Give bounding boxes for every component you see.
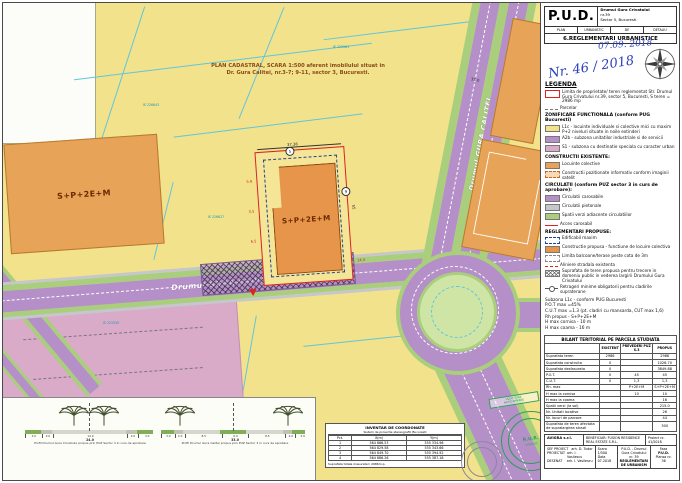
pud-logo-text: P.U.D. — [545, 7, 597, 26]
profile-caption: Profil Drumul Gura Calitei propus prin P… — [161, 442, 309, 446]
legend-item: L1c - locuinte individuale si colective … — [545, 125, 676, 134]
dim-left2: 3.5 — [248, 209, 254, 213]
legend-section: ZONIFICARE FUNCTIONALA (conform PUG Bucu… — [545, 113, 676, 123]
tree-icon — [271, 403, 305, 429]
role-row: PROIECTATarh. I. Vasilescu — [547, 451, 593, 459]
dim-right: 14.5 — [357, 258, 365, 263]
round-stamp — [461, 441, 503, 480]
coords-total: Suprafata totala masurata= 2986m.p. — [328, 462, 462, 466]
regulated-parcel: S+P+2E+M 37.36 5.9 3.5 6.5 14.5 55 5 9 — [254, 146, 353, 286]
coords-row: 4564 886.26555 387.16 — [329, 456, 462, 461]
legend-item: Edificabil maxim — [545, 236, 676, 243]
legend-title: LEGENDA — [545, 81, 676, 88]
legend-item: Parcelar — [545, 106, 676, 111]
legend-item: A2b - subzona unitatilor industriale si … — [545, 136, 676, 143]
drawing-title-2: REGLEMENTARI DE URBANISM — [620, 459, 648, 467]
drawing-title-1: P.U.D. - Drumul Gura Crivatului nr. 39 — [620, 447, 648, 459]
tree-icon — [57, 403, 91, 429]
legend-item: Spatii verzi adiacente circulatiilor — [545, 213, 676, 220]
map-area: Drumul GURA CRIVATULUI Drumul GURA CALIT… — [3, 3, 541, 480]
legend-item: Circulatii pietonale — [545, 204, 676, 211]
ie-label: IE 226627 — [208, 215, 224, 219]
project-number: 41/2018 — [648, 440, 662, 444]
legend-item: Locuinte colective — [545, 162, 676, 169]
coordinates-table: INVENTAR DE COORDONATE Sistem de proiect… — [325, 423, 465, 468]
profile-caption: Profil Drumul Gura Crivatului propus pri… — [25, 442, 155, 446]
legend-item: S1 - subzona cu destinatie speciala cu c… — [545, 145, 676, 152]
firm-name: AVIGRA s.r.l. — [547, 436, 572, 440]
access-arrow-icon — [249, 289, 257, 297]
dim-side: 55 — [351, 204, 357, 210]
title-block-footer: AVIGRA s.r.l. BENEFICIAR: FUSION RESIDEN… — [544, 434, 677, 469]
street-profile-crivatului: 3.0 2.0 14.0 2.0 3.0 24.0 Profil Drumul … — [25, 403, 155, 446]
legend-section: REGLEMENTARI PROPUSE: — [545, 230, 676, 235]
proposed-building: S+P+2E+M — [270, 163, 343, 275]
legend-item: Constructie propusa - functiune de locui… — [545, 245, 676, 252]
bilant-table: BILANT TERITORIAL PE PARCELA STUDIATA EX… — [544, 335, 677, 432]
legend-item: Limita balcoane/terase peste cota de 3m — [545, 254, 676, 261]
legend-section: CIRCULATII (conform PUZ sector 3 in curs… — [545, 183, 676, 193]
legend-item: Aliniere stradala existenta — [545, 263, 676, 268]
existing-parcel-left: S+P+2E+M — [3, 134, 164, 254]
roundabout-island-line — [431, 286, 483, 338]
urbanism-indicators: Subzona L1c - conform PUG Bucuresti P.O.… — [545, 298, 676, 332]
bilant-row: Suprafata de teren afectata de supralarg… — [545, 421, 677, 431]
legend-item: Circulatii carosabile — [545, 195, 676, 202]
compass-rose-icon — [643, 47, 677, 81]
legend-section: CONSTRUCTII EXISTENTE: — [545, 155, 676, 160]
ie-label: IE 221555 — [103, 321, 119, 325]
satellite-building-outline — [473, 151, 541, 244]
street-profile-calitei: 3.0 2.0 8.5 6.0 8.5 2.0 3.0 33.0 Profil … — [161, 403, 309, 446]
ie-label: IE 226643 — [143, 103, 159, 107]
profile-centerline — [89, 403, 90, 431]
legend-item: Suprafata de teren propusa pentru trecer… — [545, 269, 676, 283]
pud-subtitle-row: PLANURBANISTICDEDETALIU — [545, 27, 676, 34]
tree-icon — [163, 403, 197, 429]
dim-left3: 6.5 — [251, 239, 257, 243]
ie-label: IE 220981 — [333, 45, 349, 49]
role-row: DESENATarh. I. Vasilescu — [547, 459, 593, 463]
drawing-sheet: Drumul GURA CRIVATULUI Drumul GURA CALIT… — [0, 0, 682, 483]
bilant-title: BILANT TERITORIAL PE PARCELA STUDIATA — [544, 335, 677, 343]
legend-item: Acces carosabil — [545, 222, 676, 227]
setback-marker: 5 — [285, 147, 295, 157]
pud-title-block: P.U.D. Drumul Gura Crivatului nr.39 Sect… — [544, 6, 677, 44]
plan-edge-line — [95, 3, 96, 143]
legend-item: Limita de proprietate/ teren reglementat… — [545, 90, 676, 104]
legend-item: Retrageri minime obligatorii pentru clad… — [545, 285, 676, 294]
sheet-number: 36 — [653, 459, 674, 463]
dim-left1: 5.9 — [246, 180, 252, 184]
date-value: 07.2018 — [598, 459, 615, 463]
tree-icon — [87, 403, 121, 429]
proposed-building-label: S+P+2E+M — [282, 213, 331, 225]
plan-cadastral-title: PLAN CADASTRAL, SCARA 1:500 aferent imob… — [163, 63, 433, 76]
existing-parcel-label: S+P+2E+M — [57, 188, 111, 201]
profile-centerline — [233, 403, 234, 431]
legend-item: Constructii pozitionate informativ confo… — [545, 171, 676, 180]
